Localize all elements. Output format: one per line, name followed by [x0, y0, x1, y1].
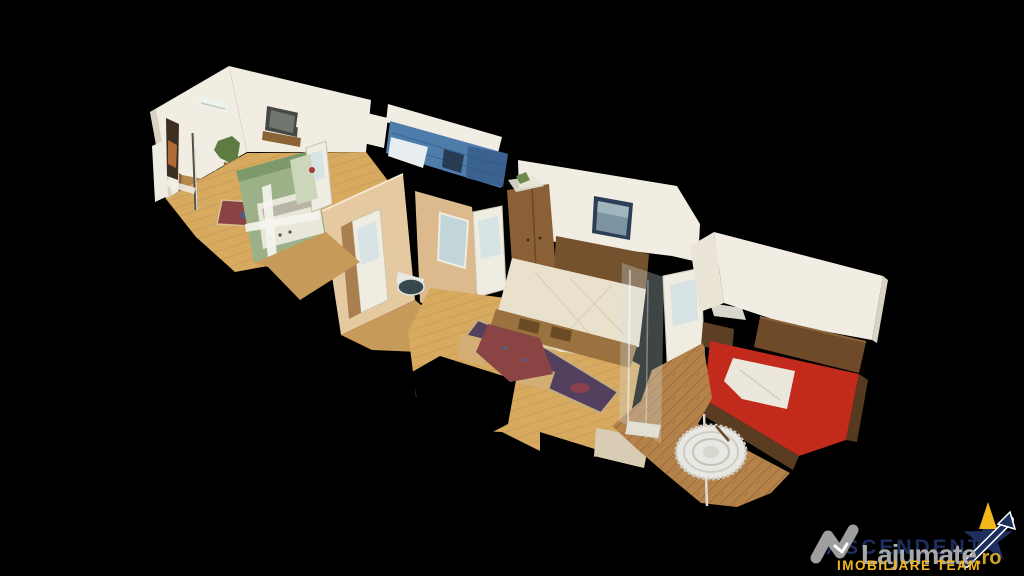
glass-panel-artifact — [619, 263, 664, 443]
chandelier-center — [703, 446, 719, 458]
bathroom-tiles-dark — [466, 146, 508, 187]
toilet-bowl — [398, 279, 424, 295]
hall-window — [438, 213, 468, 268]
stove-knob — [288, 230, 291, 233]
screenshot-root: ASCENDENT Lajumate.ro IMOBILIARE TEAM — [0, 0, 1024, 576]
room-bedroom-2 — [605, 232, 888, 515]
hall-door-2-glass — [478, 216, 501, 259]
rug-dot — [503, 346, 507, 350]
rug-medallion — [570, 383, 590, 393]
top-room-pillow — [309, 167, 315, 173]
room-bathroom — [386, 104, 508, 188]
rug-dot — [523, 358, 527, 362]
bedroom-door-glass — [670, 279, 698, 326]
bedroom2-wall — [714, 232, 883, 340]
wardrobe-handle — [539, 237, 542, 240]
dollhouse-3d-view[interactable] — [0, 0, 1024, 576]
stove-knob — [278, 233, 281, 236]
wardrobe-handle — [527, 239, 530, 242]
